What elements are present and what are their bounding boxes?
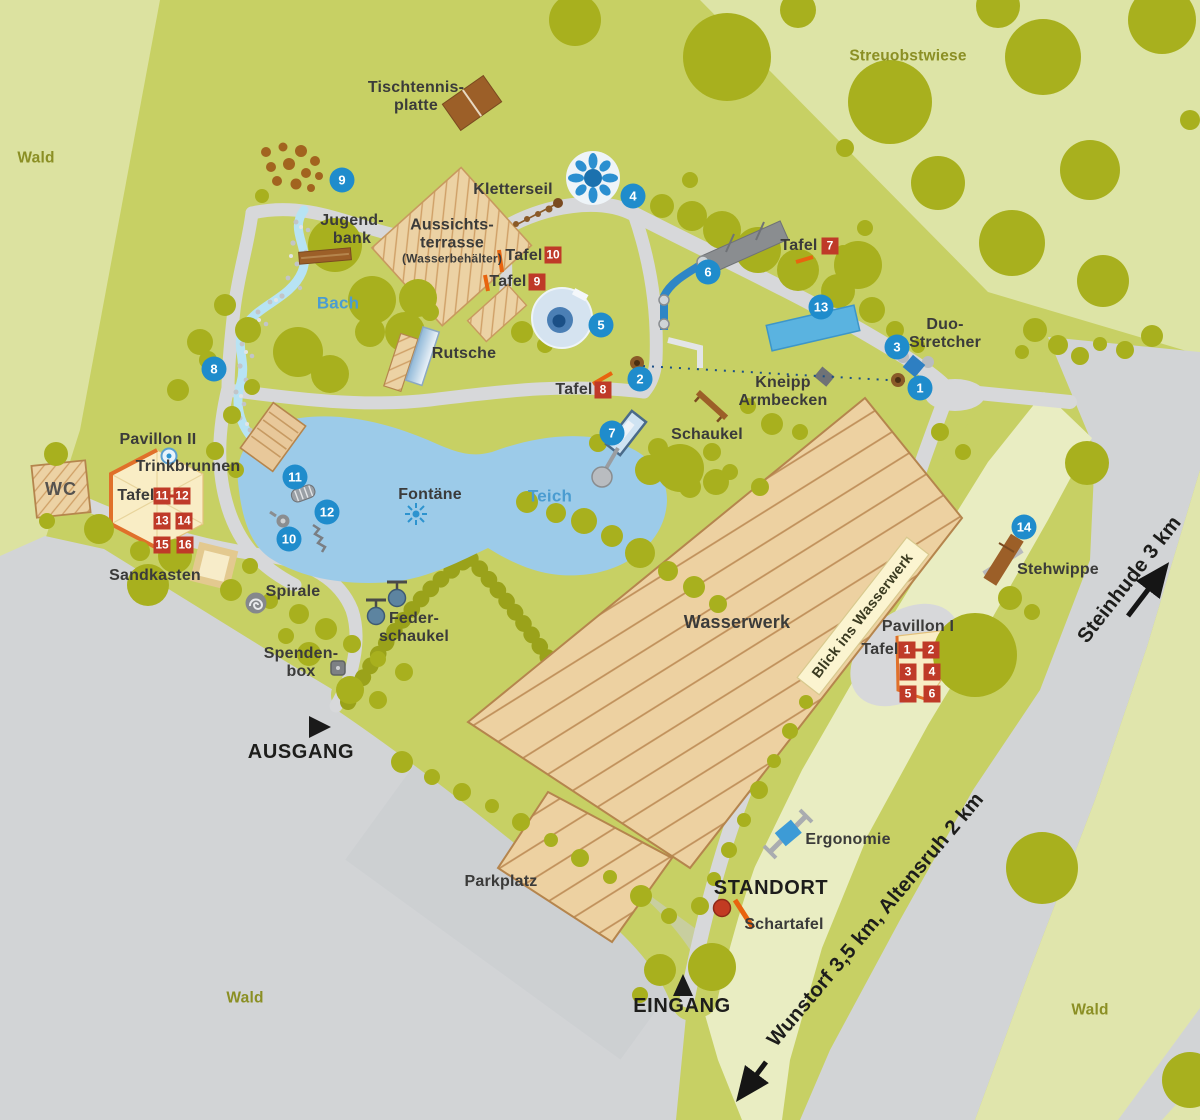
park-map: Wald Streuobstwiese Tischtennis- platte …: [0, 0, 1200, 1120]
wc-building: [31, 460, 90, 517]
fountain-icon: [405, 503, 427, 525]
park-map-graphic: [0, 0, 1200, 1120]
water-wheel-icon: [566, 151, 620, 205]
drinking-fountain-icon: [162, 449, 177, 464]
standort-dot: [714, 900, 731, 917]
whirlpool-basin-icon: [532, 288, 592, 348]
spiral-icon: [246, 593, 267, 614]
donation-box-icon: [331, 661, 345, 675]
